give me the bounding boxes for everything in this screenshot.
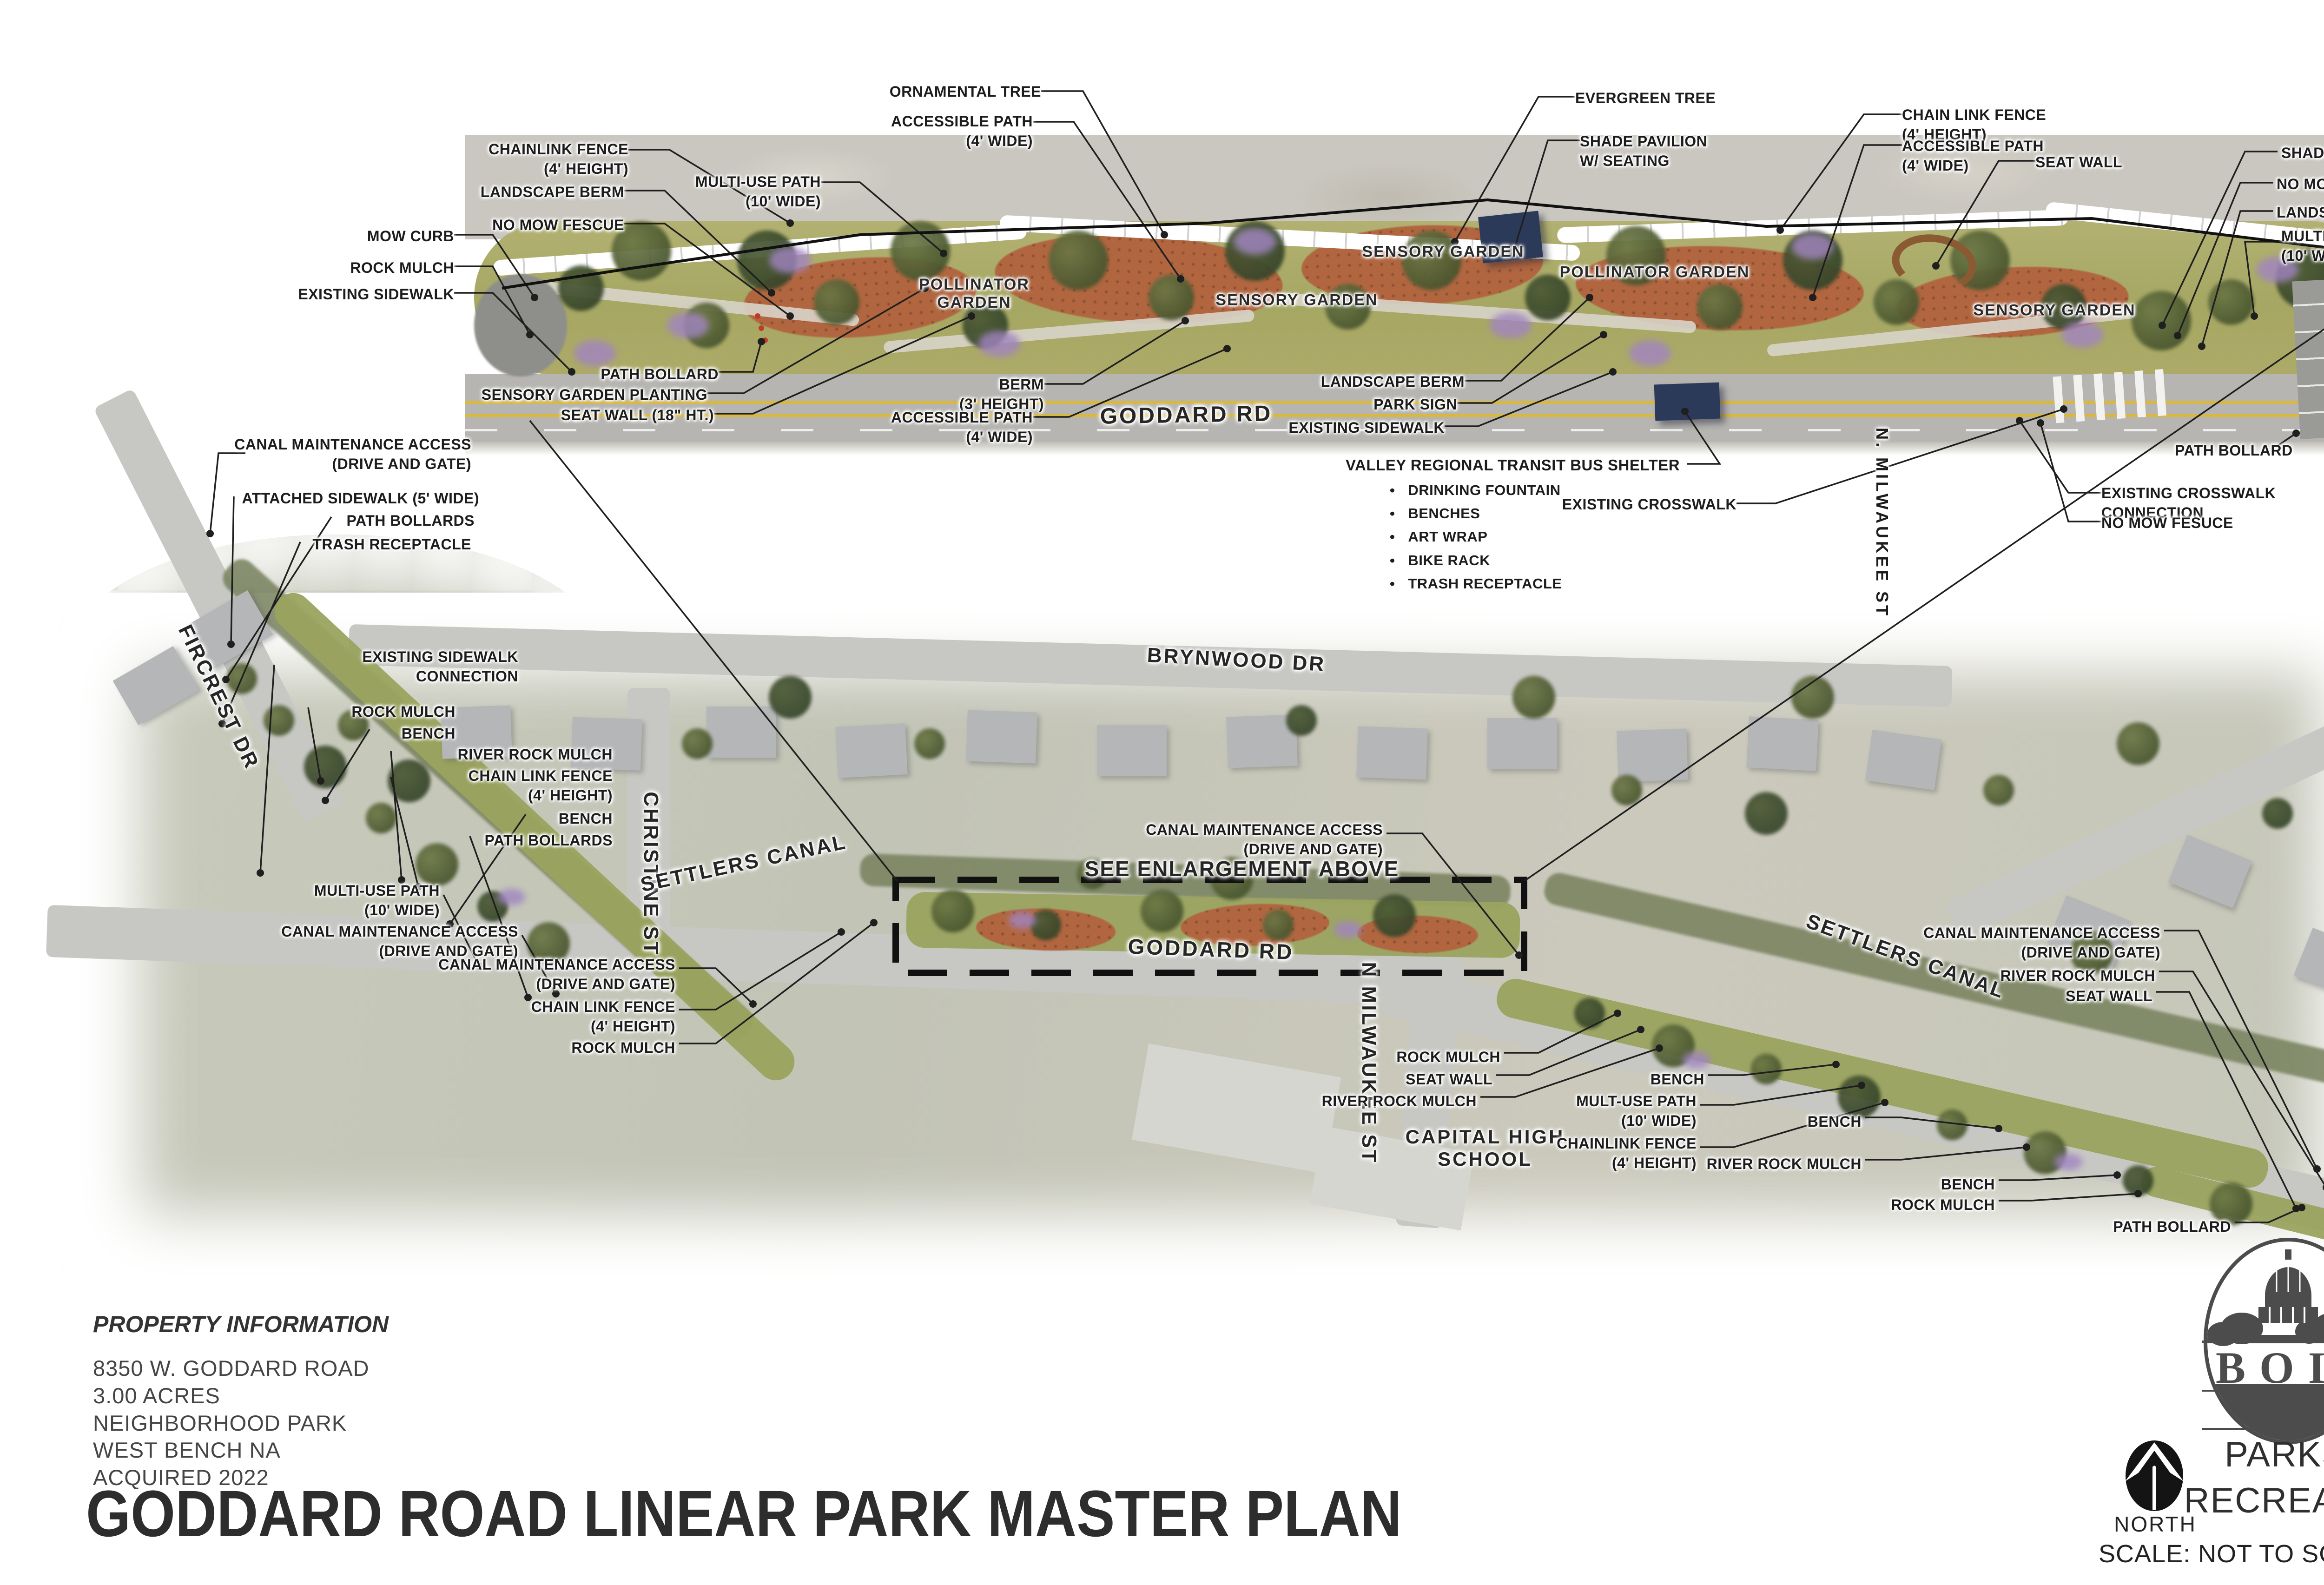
callout-label: RIVER ROCK MULCH: [2000, 966, 2155, 985]
scale-note: SCALE: NOT TO SCALE: [2099, 1539, 2324, 1568]
leader-line: [308, 707, 321, 781]
callout-label: SEAT WALL (18" HT.): [561, 405, 714, 425]
leader-dot: [2113, 1171, 2121, 1179]
callout-label: BENCH: [1941, 1175, 1995, 1194]
leader-dot: [227, 641, 235, 648]
leader-line: [1386, 833, 1519, 955]
leader-line: [2020, 421, 2101, 493]
leader-line: [707, 288, 925, 393]
callout-label: ATTACHED SIDEWALK (5' WIDE): [242, 489, 479, 508]
callout-label: ACCESSIBLE PATH (4' WIDE): [891, 408, 1033, 447]
leader-line: [1999, 1194, 2138, 1201]
garden-label: POLLINATOR GARDEN: [1560, 264, 1750, 282]
leader-line: [260, 665, 274, 873]
leader-dot: [1995, 1125, 2002, 1132]
street-label-milwaukee-map: N MILWAUKEE ST: [1357, 962, 1380, 1164]
leader-line: [231, 496, 234, 644]
leader-dot: [1881, 1099, 1888, 1106]
bus-shelter-items: DRINKING FOUNTAIN BENCHES ART WRAP BIKE …: [1390, 479, 1680, 595]
callout-label: SHADE TREE: [2281, 143, 2324, 163]
leader-dot: [1681, 408, 1689, 415]
callout-label: ROCK MULCH: [571, 1038, 675, 1057]
leader-dot: [1809, 294, 1816, 301]
leader-line: [1708, 1064, 1836, 1075]
leader-line: [2235, 1208, 2302, 1222]
leader-line: [719, 342, 761, 372]
callout-label: LANDSCAPE BERM: [1321, 372, 1465, 391]
leader-line: [714, 316, 971, 414]
leader-dot: [1182, 317, 1189, 324]
callout-label: RIVER ROCK MULCH: [458, 745, 613, 764]
leader-line: [1457, 335, 1604, 403]
callout-label: BENCH: [402, 724, 456, 743]
leader-line: [1999, 1175, 2117, 1180]
leader-line: [1865, 1147, 2027, 1160]
callout-label: ROCK MULCH: [351, 702, 456, 721]
logo-wordmark-band: BOISE: [2202, 1341, 2324, 1390]
leader-dot: [1586, 294, 1593, 301]
leader-line: [1685, 411, 1720, 464]
leader-line: [1465, 297, 1590, 381]
leader-line: [1513, 140, 1580, 253]
leader-line: [325, 729, 370, 800]
leader-dot: [749, 1000, 757, 1008]
leader-dot: [206, 530, 214, 537]
callout-label: LANDSCAPE BERM: [2277, 203, 2324, 222]
callout-label: SHADE PAVILION W/ SEATING: [1580, 132, 1707, 171]
callout-label: ACCESSIBLE PATH (4' WIDE): [891, 112, 1033, 151]
leader-line: [1455, 97, 1575, 242]
leader-line: [679, 923, 874, 1043]
callout-label: ROCK MULCH: [1891, 1195, 1995, 1215]
leader-line: [2159, 971, 2324, 1188]
garden-label: SENSORY GARDEN: [1362, 243, 1524, 261]
callout-label: MOW CURB: [367, 226, 454, 246]
leader-dot: [1515, 951, 1523, 959]
leader-dot: [2292, 429, 2300, 437]
callout-label: CANAL MAINTENANCE ACCESS (DRIVE AND GATE…: [1146, 820, 1383, 859]
street-label-goddard-enlargement: GODDARD RD: [1100, 401, 1273, 429]
page-title: GODDARD ROAD LINEAR PARK MASTER PLAN: [86, 1476, 1402, 1551]
callout-label: ROCK MULCH: [1396, 1047, 1500, 1067]
leader-line: [2040, 423, 2101, 522]
leader-line: [454, 266, 530, 335]
bus-shelter-note: VALLEY REGIONAL TRANSIT BUS SHELTER DRIN…: [1346, 456, 1680, 595]
leader-dot: [786, 219, 794, 227]
callout-label: MULTI-USE PATH (10' WIDE): [695, 172, 821, 211]
callout-label: LANDSCAPE BERM: [481, 182, 624, 202]
leader-dot: [524, 994, 532, 1001]
leader-dot: [1600, 331, 1607, 338]
callout-label: MULTI-USE PATH (10' WIDE): [2281, 226, 2324, 265]
leader-line: [1736, 409, 2064, 503]
callout-label: CHAIN LINK FENCE (4' HEIGHT): [469, 766, 613, 805]
callout-label: EXISTING SIDEWALK CONNECTION: [362, 647, 518, 686]
leader-dot: [257, 869, 264, 877]
callout-label: PARK SIGN: [1373, 395, 1457, 414]
leader-dot: [1177, 275, 1184, 283]
leader-dot: [2251, 312, 2258, 320]
leader-dot: [1161, 231, 1168, 238]
leader-dot: [1832, 1061, 1840, 1068]
leader-dot: [1609, 368, 1617, 376]
leader-line: [1936, 161, 2035, 266]
callout-label: NO MOW FESCUE: [492, 215, 624, 235]
leader-dot: [2134, 1190, 2142, 1197]
leader-line: [1041, 91, 1164, 235]
leader-lines: [0, 0, 2324, 1585]
leader-line: [1044, 321, 1185, 384]
callout-label: CHAINLINK FENCE (4' HEIGHT): [489, 139, 628, 178]
north-arrow-icon: [2119, 1439, 2189, 1513]
leader-line: [679, 932, 841, 1010]
leader-dot: [870, 919, 878, 926]
garden-label: POLLINATOR GARDEN: [919, 276, 1030, 312]
callout-label: BENCH: [1651, 1070, 1704, 1089]
callout-label: EXISTING SIDEWALK: [1288, 418, 1445, 437]
master-plan-sheet: POLLINATOR GARDEN SENSORY GARDEN SENSORY…: [0, 0, 2324, 1585]
callout-label: PATH BOLLARD: [601, 364, 719, 384]
leader-line: [2178, 183, 2273, 336]
logo-tagline: CITY OF TREES: [2202, 1390, 2324, 1430]
department-label: PARKS & RECREATION: [2184, 1432, 2324, 1524]
leader-dot: [2060, 405, 2067, 413]
leader-dot: [838, 928, 845, 936]
leader-dot: [2174, 332, 2181, 339]
leader-dot: [568, 368, 575, 376]
callout-label: PATH BOLLARD: [2175, 441, 2293, 460]
callout-label: SEAT WALL: [2066, 986, 2152, 1006]
leader-dot: [1223, 345, 1231, 352]
property-information-lines: 8350 W. GODDARD ROAD 3.00 ACRES NEIGHBOR…: [93, 1355, 370, 1492]
leader-dot: [2037, 419, 2044, 427]
see-enlargement-label: SEE ENLARGEMENT ABOVE: [1085, 856, 1400, 881]
leader-dot: [2198, 343, 2205, 350]
callout-label: EVERGREEN TREE: [1575, 88, 1716, 108]
garden-label: SENSORY GARDEN: [1215, 291, 1378, 310]
leader-dot: [2292, 1205, 2300, 1212]
leader-line: [1480, 1048, 1659, 1097]
bus-shelter-item: BIKE RACK: [1390, 549, 1680, 572]
leader-dot: [1932, 262, 1940, 270]
callout-label: CHAINLINK FENCE (4' HEIGHT): [1557, 1134, 1697, 1173]
leader-dot: [786, 312, 794, 320]
callout-label: RIVER ROCK MULCH: [1322, 1091, 1477, 1111]
leader-dot: [768, 289, 775, 297]
leader-line: [2202, 211, 2273, 346]
leader-dot: [1614, 1010, 1621, 1017]
leader-dot: [317, 777, 324, 785]
garden-label: SENSORY GARDEN: [1973, 302, 2135, 320]
bus-shelter-label: VALLEY REGIONAL TRANSIT BUS SHELTER: [1346, 456, 1680, 474]
leader-dot: [1858, 1082, 1865, 1089]
leader-dot: [1656, 1044, 1663, 1052]
leader-dot: [940, 250, 947, 257]
callout-label: NO MOW FESUCE: [2101, 513, 2233, 533]
leader-dot: [1637, 1026, 1644, 1033]
leader-line: [2245, 242, 2278, 316]
leader-line: [1865, 1117, 1999, 1129]
leader-dot: [2023, 1143, 2030, 1151]
school-label: CAPITAL HIGH SCHOOL: [1406, 1126, 1565, 1170]
callout-label: CHAIN LINK FENCE (4' HEIGHT): [531, 997, 675, 1036]
callout-label: BENCH: [559, 809, 613, 828]
callout-label: ORNAMENTAL TREE: [890, 82, 1041, 101]
leader-line: [624, 224, 790, 316]
street-label-milwaukee-enlargement: N. MILWAUKEE ST: [1871, 428, 1893, 618]
bus-shelter-item: DRINKING FOUNTAIN: [1390, 479, 1680, 502]
leader-dot: [758, 338, 765, 345]
capitol-dome-icon: [2285, 1249, 2291, 1260]
callout-label: CANAL MAINTENANCE ACCESS (DRIVE AND GATE…: [438, 955, 675, 994]
callout-label: ACCESSIBLE PATH (4' WIDE): [1902, 136, 2044, 175]
callout-label: CANAL MAINTENANCE ACCESS (DRIVE AND GATE…: [1923, 923, 2160, 962]
bus-shelter-item: BENCHES: [1390, 502, 1680, 525]
callout-label: NO MOW FESCUE: [2277, 174, 2324, 194]
leader-dot: [968, 312, 975, 320]
callout-label: PATH BOLLARDS: [346, 511, 475, 530]
callout-label: PATH BOLLARDS: [484, 831, 613, 850]
callout-label: RIVER ROCK MULCH: [1707, 1154, 1862, 1174]
callout-label: EXISTING SIDEWALK: [298, 284, 454, 304]
callout-label: SEAT WALL: [2035, 152, 2122, 172]
leader-dot: [322, 797, 329, 804]
leader-dot: [2159, 322, 2166, 329]
callout-label: SEAT WALL: [1406, 1070, 1492, 1089]
callout-label: PATH BOLLARD: [2113, 1217, 2231, 1236]
callout-label: ROCK MULCH: [350, 258, 454, 277]
leader-line: [222, 542, 300, 724]
property-information-heading: PROPERTY INFORMATION: [93, 1311, 389, 1338]
leader-dot: [531, 294, 538, 301]
leader-line: [1700, 1085, 1862, 1105]
bus-shelter-item: TRASH RECEPTACLE: [1390, 572, 1680, 595]
leader-line: [679, 968, 753, 1004]
callout-label: BENCH: [1808, 1112, 1862, 1131]
callout-label: TRASH RECEPTACLE: [312, 535, 471, 554]
construction-line-right: [1525, 328, 2324, 881]
callout-label: MULT-USE PATH (10' WIDE): [1576, 1091, 1697, 1130]
leader-line: [391, 777, 418, 887]
leader-line: [1033, 122, 1181, 279]
logo-city-name: BOISE: [2202, 1346, 2324, 1390]
callout-label: CANAL MAINTENANCE ACCESS (DRIVE AND GATE…: [234, 435, 471, 474]
leader-line: [821, 182, 944, 253]
bus-shelter-item: ART WRAP: [1390, 525, 1680, 548]
callout-label: SENSORY GARDEN PLANTING: [482, 385, 707, 404]
leader-dot: [2016, 417, 2023, 424]
callout-label: MULTI-USE PATH (10' WIDE): [314, 881, 440, 920]
